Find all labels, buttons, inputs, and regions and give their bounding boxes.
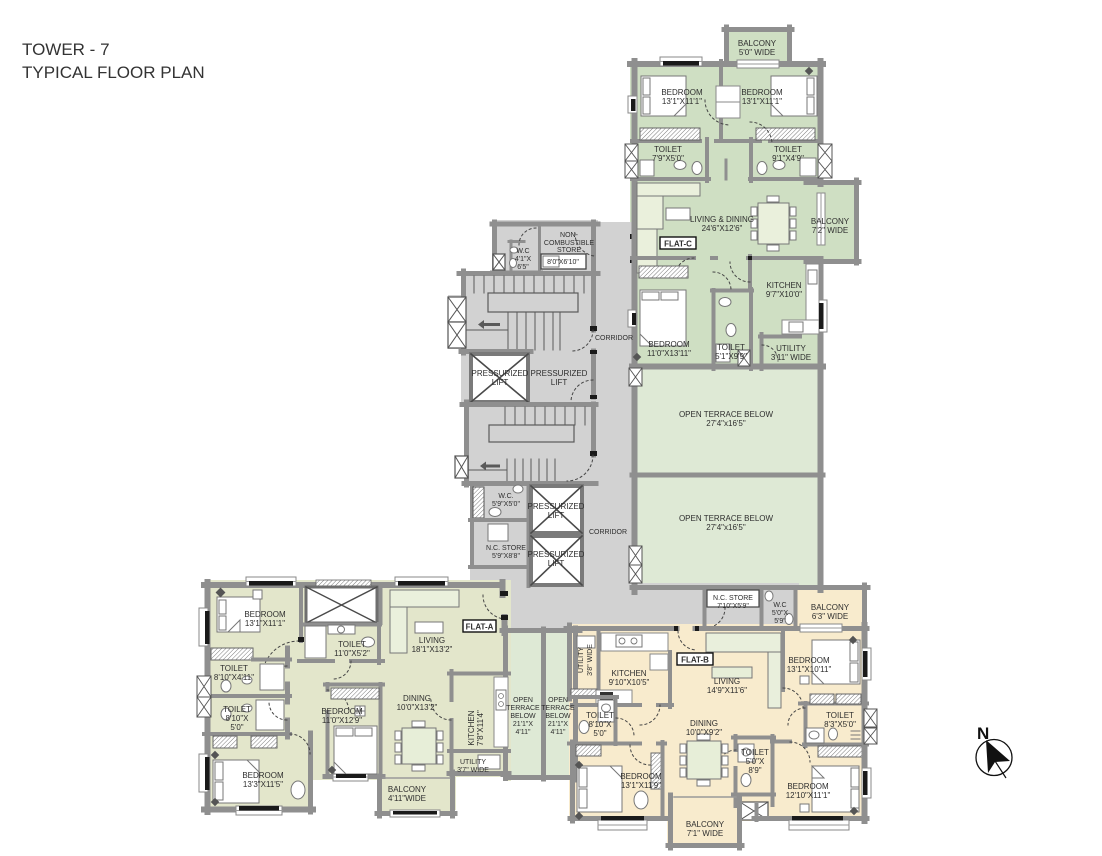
svg-text:CORRIDOR: CORRIDOR	[595, 335, 633, 342]
svg-text:10'0"X13'2": 10'0"X13'2"	[397, 703, 438, 712]
svg-text:UTILITY: UTILITY	[578, 647, 585, 673]
svg-text:TOILET: TOILET	[338, 640, 366, 649]
svg-text:UTILITY: UTILITY	[460, 759, 486, 766]
svg-text:OPEN: OPEN	[513, 697, 533, 704]
svg-text:FLAT-B: FLAT-B	[681, 656, 709, 665]
svg-text:13'3"X11'5": 13'3"X11'5"	[243, 780, 283, 789]
svg-text:5'9"X8'8": 5'9"X8'8"	[492, 553, 520, 560]
svg-text:3'8" WIDE: 3'8" WIDE	[587, 644, 594, 676]
svg-text:PRESSURIZED: PRESSURIZED	[528, 502, 585, 511]
svg-text:TOILET: TOILET	[717, 343, 745, 352]
svg-text:BALCONY: BALCONY	[738, 39, 777, 48]
svg-text:PRESSURIZED: PRESSURIZED	[531, 369, 588, 378]
svg-text:BALCONY: BALCONY	[811, 603, 850, 612]
svg-text:UTILITY: UTILITY	[776, 344, 806, 353]
svg-text:8'10"X: 8'10"X	[588, 720, 612, 729]
svg-text:BEDROOM: BEDROOM	[321, 707, 363, 716]
svg-text:9'7"X10'0": 9'7"X10'0"	[766, 290, 802, 299]
svg-text:27'4"x16'5": 27'4"x16'5"	[706, 523, 746, 532]
svg-text:FLAT-C: FLAT-C	[664, 240, 692, 249]
svg-text:8'10"X4'11": 8'10"X4'11"	[214, 673, 254, 682]
svg-text:7'9"X5'0": 7'9"X5'0"	[652, 154, 684, 163]
svg-text:BELOW: BELOW	[510, 713, 536, 720]
svg-text:W.C: W.C	[773, 602, 786, 609]
svg-text:6'3" WIDE: 6'3" WIDE	[812, 612, 848, 621]
svg-text:11'0"X13'11": 11'0"X13'11"	[647, 349, 691, 358]
svg-text:11'0"X12'9": 11'0"X12'9"	[322, 716, 362, 725]
svg-text:3'11" WIDE: 3'11" WIDE	[771, 353, 811, 362]
svg-text:5'9": 5'9"	[774, 618, 786, 625]
svg-text:TOWER - 7: TOWER - 7	[22, 40, 110, 59]
svg-text:4'1"X: 4'1"X	[515, 256, 532, 263]
svg-text:TOILET: TOILET	[774, 145, 802, 154]
svg-text:KITCHEN: KITCHEN	[611, 669, 646, 678]
svg-text:LIFT: LIFT	[551, 378, 568, 387]
svg-text:13'1"X11'1": 13'1"X11'1"	[245, 619, 285, 628]
svg-text:12'10"X11'1": 12'10"X11'1"	[786, 791, 831, 800]
svg-text:TOILET: TOILET	[654, 145, 682, 154]
svg-text:5'1"X9'9": 5'1"X9'9"	[715, 352, 747, 361]
svg-text:8'10"X: 8'10"X	[225, 714, 249, 723]
svg-text:NON-: NON-	[560, 232, 579, 239]
svg-text:PRESSURIZED: PRESSURIZED	[528, 550, 585, 559]
svg-text:N.C. STORE: N.C. STORE	[713, 595, 753, 602]
svg-text:BEDROOM: BEDROOM	[788, 656, 830, 665]
svg-text:LIFT: LIFT	[548, 511, 565, 520]
svg-text:W.C.: W.C.	[498, 493, 513, 500]
svg-text:TOILET: TOILET	[220, 664, 248, 673]
svg-text:DINING: DINING	[690, 719, 718, 728]
svg-text:4'11": 4'11"	[551, 729, 566, 736]
svg-text:N.C. STORE: N.C. STORE	[486, 545, 526, 552]
svg-text:TOILET: TOILET	[741, 748, 769, 757]
svg-text:BEDROOM: BEDROOM	[787, 782, 829, 791]
svg-text:TOILET: TOILET	[586, 711, 614, 720]
svg-text:OPEN TERRACE BELOW: OPEN TERRACE BELOW	[679, 410, 774, 419]
svg-text:TOILET: TOILET	[826, 711, 854, 720]
svg-text:5'0"X: 5'0"X	[772, 610, 789, 617]
svg-text:13'1"X11'1": 13'1"X11'1"	[742, 97, 782, 106]
svg-text:OPEN TERRACE BELOW: OPEN TERRACE BELOW	[679, 514, 774, 523]
svg-text:9'1"X4'9": 9'1"X4'9"	[772, 154, 804, 163]
svg-text:W.C: W.C	[516, 248, 529, 255]
svg-text:KITCHEN: KITCHEN	[766, 281, 801, 290]
svg-text:BALCONY: BALCONY	[686, 820, 725, 829]
svg-text:TERRACE: TERRACE	[541, 705, 575, 712]
svg-text:7'10"X5'9": 7'10"X5'9"	[717, 603, 749, 610]
svg-text:3'7" WIDE: 3'7" WIDE	[457, 767, 489, 774]
svg-text:LIVING: LIVING	[419, 636, 445, 645]
svg-text:18'1"X13'2": 18'1"X13'2"	[412, 645, 453, 654]
svg-text:BEDROOM: BEDROOM	[741, 88, 783, 97]
svg-text:13'1"X10'11": 13'1"X10'11"	[787, 665, 832, 674]
svg-text:BEDROOM: BEDROOM	[661, 88, 703, 97]
svg-text:BEDROOM: BEDROOM	[648, 340, 690, 349]
svg-text:TYPICAL FLOOR PLAN: TYPICAL FLOOR PLAN	[22, 63, 205, 82]
svg-text:CORRIDOR: CORRIDOR	[589, 529, 627, 536]
svg-text:11'0"X5'2": 11'0"X5'2"	[334, 649, 370, 658]
svg-text:PRESSURIZED: PRESSURIZED	[472, 369, 529, 378]
svg-text:STORE: STORE	[557, 247, 581, 254]
svg-text:10'0"X9'2": 10'0"X9'2"	[686, 728, 722, 737]
svg-text:5'0": 5'0"	[593, 729, 606, 738]
svg-text:FLAT-A: FLAT-A	[466, 623, 494, 632]
svg-text:OPEN: OPEN	[548, 697, 568, 704]
svg-text:LIFT: LIFT	[492, 378, 509, 387]
svg-text:13'1"X11'1": 13'1"X11'1"	[662, 97, 702, 106]
svg-text:13'1"X11'9": 13'1"X11'9"	[621, 781, 661, 790]
svg-text:5'9"X5'0": 5'9"X5'0"	[492, 501, 520, 508]
svg-text:BEDROOM: BEDROOM	[244, 610, 286, 619]
svg-text:5'0" WIDE: 5'0" WIDE	[739, 48, 775, 57]
svg-text:8'0"X6'10": 8'0"X6'10"	[547, 259, 579, 266]
svg-text:4'11"WIDE: 4'11"WIDE	[388, 794, 426, 803]
svg-text:8'3"X5'0": 8'3"X5'0"	[824, 720, 856, 729]
svg-text:COMBUSTIBLE: COMBUSTIBLE	[544, 240, 595, 247]
svg-text:4'11": 4'11"	[516, 729, 531, 736]
svg-text:BALCONY: BALCONY	[388, 785, 427, 794]
svg-text:21'1"X: 21'1"X	[513, 721, 534, 728]
svg-text:5'0"X: 5'0"X	[746, 757, 765, 766]
svg-text:14'9"X11'6": 14'9"X11'6"	[707, 686, 747, 695]
svg-text:BEDROOM: BEDROOM	[620, 772, 662, 781]
svg-text:BELOW: BELOW	[545, 713, 571, 720]
svg-text:DINING: DINING	[403, 694, 431, 703]
svg-text:9'10"X10'5": 9'10"X10'5"	[609, 678, 650, 687]
svg-text:7'8"X11'4": 7'8"X11'4"	[476, 710, 485, 746]
svg-text:27'4"x16'5": 27'4"x16'5"	[706, 419, 746, 428]
svg-text:8'9": 8'9"	[748, 766, 761, 775]
svg-text:BEDROOM: BEDROOM	[242, 771, 284, 780]
svg-text:LIVING: LIVING	[714, 677, 740, 686]
svg-text:6'5": 6'5"	[517, 264, 529, 271]
svg-text:24'6"X12'6": 24'6"X12'6"	[702, 224, 743, 233]
svg-text:TERRACE: TERRACE	[506, 705, 540, 712]
svg-text:7'2" WIDE: 7'2" WIDE	[812, 226, 848, 235]
svg-text:KITCHEN: KITCHEN	[467, 710, 476, 745]
svg-text:5'0": 5'0"	[230, 723, 243, 732]
svg-text:21'1"X: 21'1"X	[548, 721, 569, 728]
svg-text:LIVING & DINING: LIVING & DINING	[690, 215, 754, 224]
svg-text:LIFT: LIFT	[548, 559, 565, 568]
svg-text:TOILET: TOILET	[223, 705, 251, 714]
svg-text:BALCONY: BALCONY	[811, 217, 850, 226]
svg-text:7'1" WIDE: 7'1" WIDE	[687, 829, 723, 838]
